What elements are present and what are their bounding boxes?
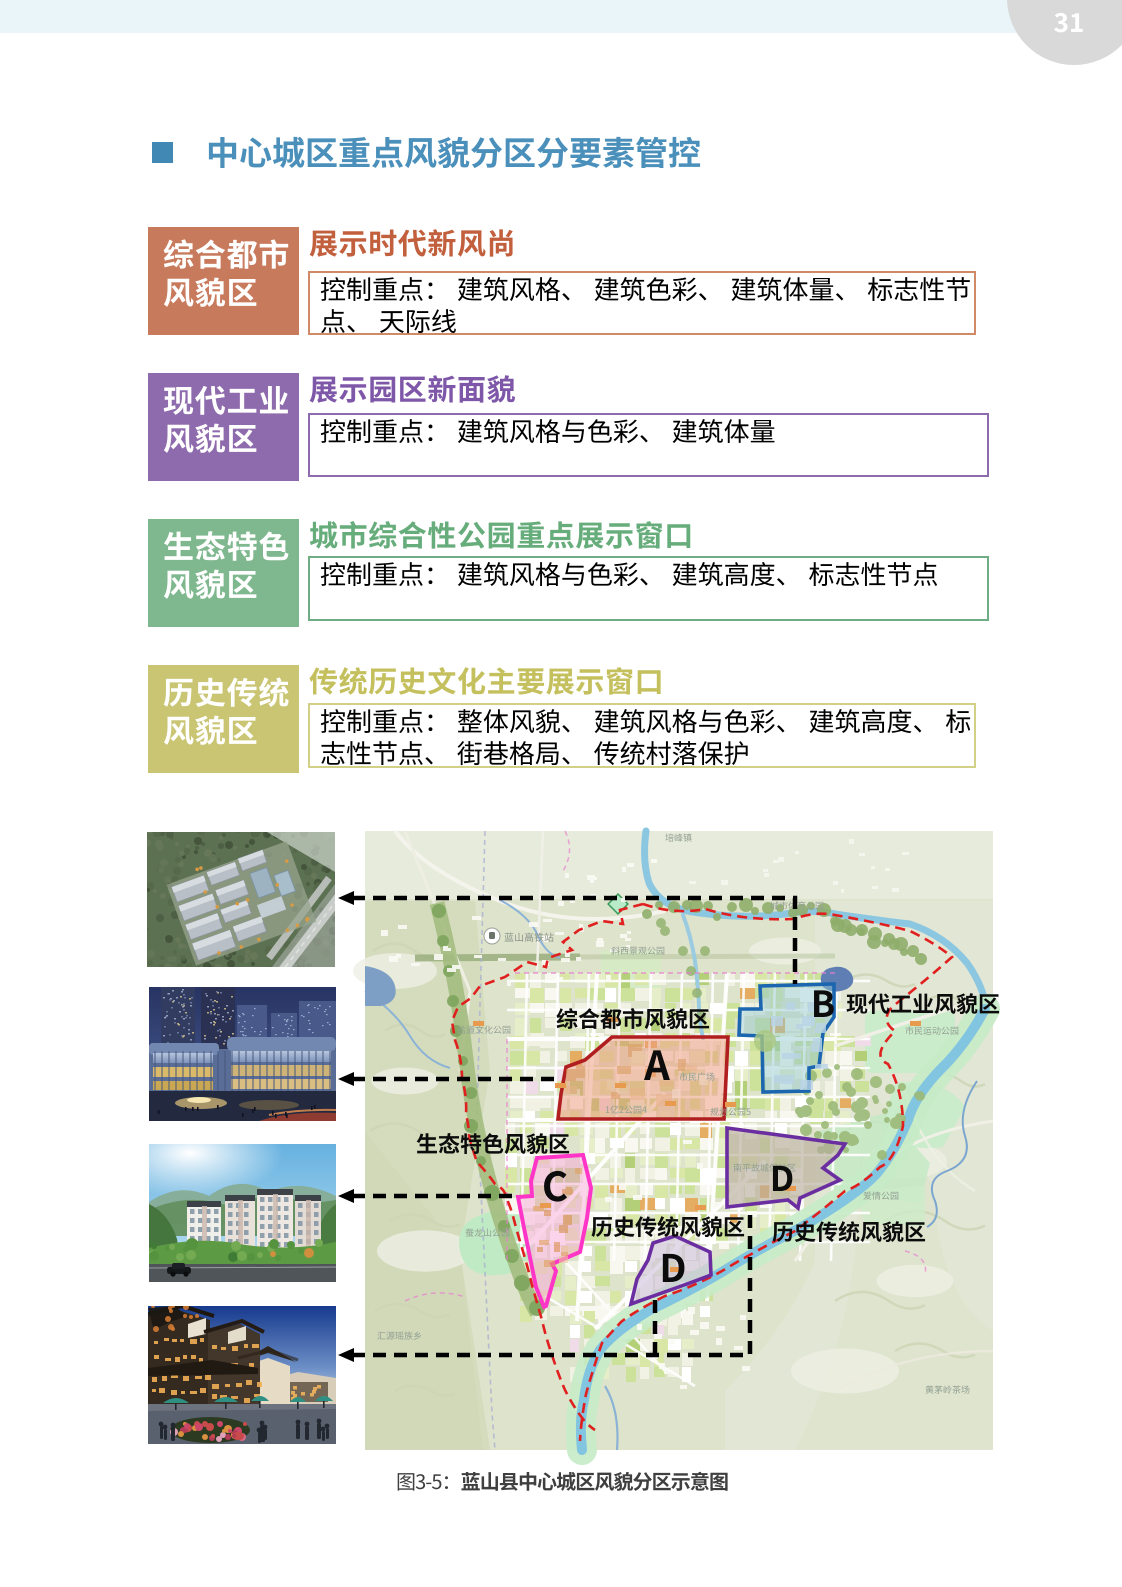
svg-text:A: A: [643, 1034, 670, 1092]
svg-text:现代工业风貌区: 现代工业风貌区: [846, 987, 1000, 1019]
svg-text:爱情公园: 爱情公园: [863, 1189, 899, 1202]
svg-text:黄茅岭茶场: 黄茅岭茶场: [925, 1383, 970, 1396]
svg-text:培峰镇: 培峰镇: [665, 831, 692, 844]
svg-text:B: B: [811, 976, 836, 1028]
svg-text:市民广场: 市民广场: [679, 1070, 715, 1083]
svg-text:蚕龙山公园: 蚕龙山公园: [465, 1226, 510, 1239]
svg-text:D: D: [770, 1152, 794, 1201]
svg-text:汇源瑶族乡: 汇源瑶族乡: [377, 1329, 422, 1342]
svg-text:C: C: [542, 1155, 568, 1213]
svg-text:城市体育公园: 城市体育公园: [770, 899, 824, 912]
svg-text:1亿2公园4: 1亿2公园4: [605, 1103, 647, 1116]
svg-text:D: D: [659, 1238, 686, 1293]
svg-text:历史传统风貌区: 历史传统风貌区: [772, 1215, 926, 1247]
svg-text:蓝山高铁站: 蓝山高铁站: [504, 929, 554, 944]
svg-text:斜西景观公园: 斜西景观公园: [611, 944, 665, 957]
svg-text:综合都市风貌区: 综合都市风貌区: [556, 1002, 710, 1034]
svg-text:盐道文化公园: 盐道文化公园: [457, 1023, 511, 1036]
